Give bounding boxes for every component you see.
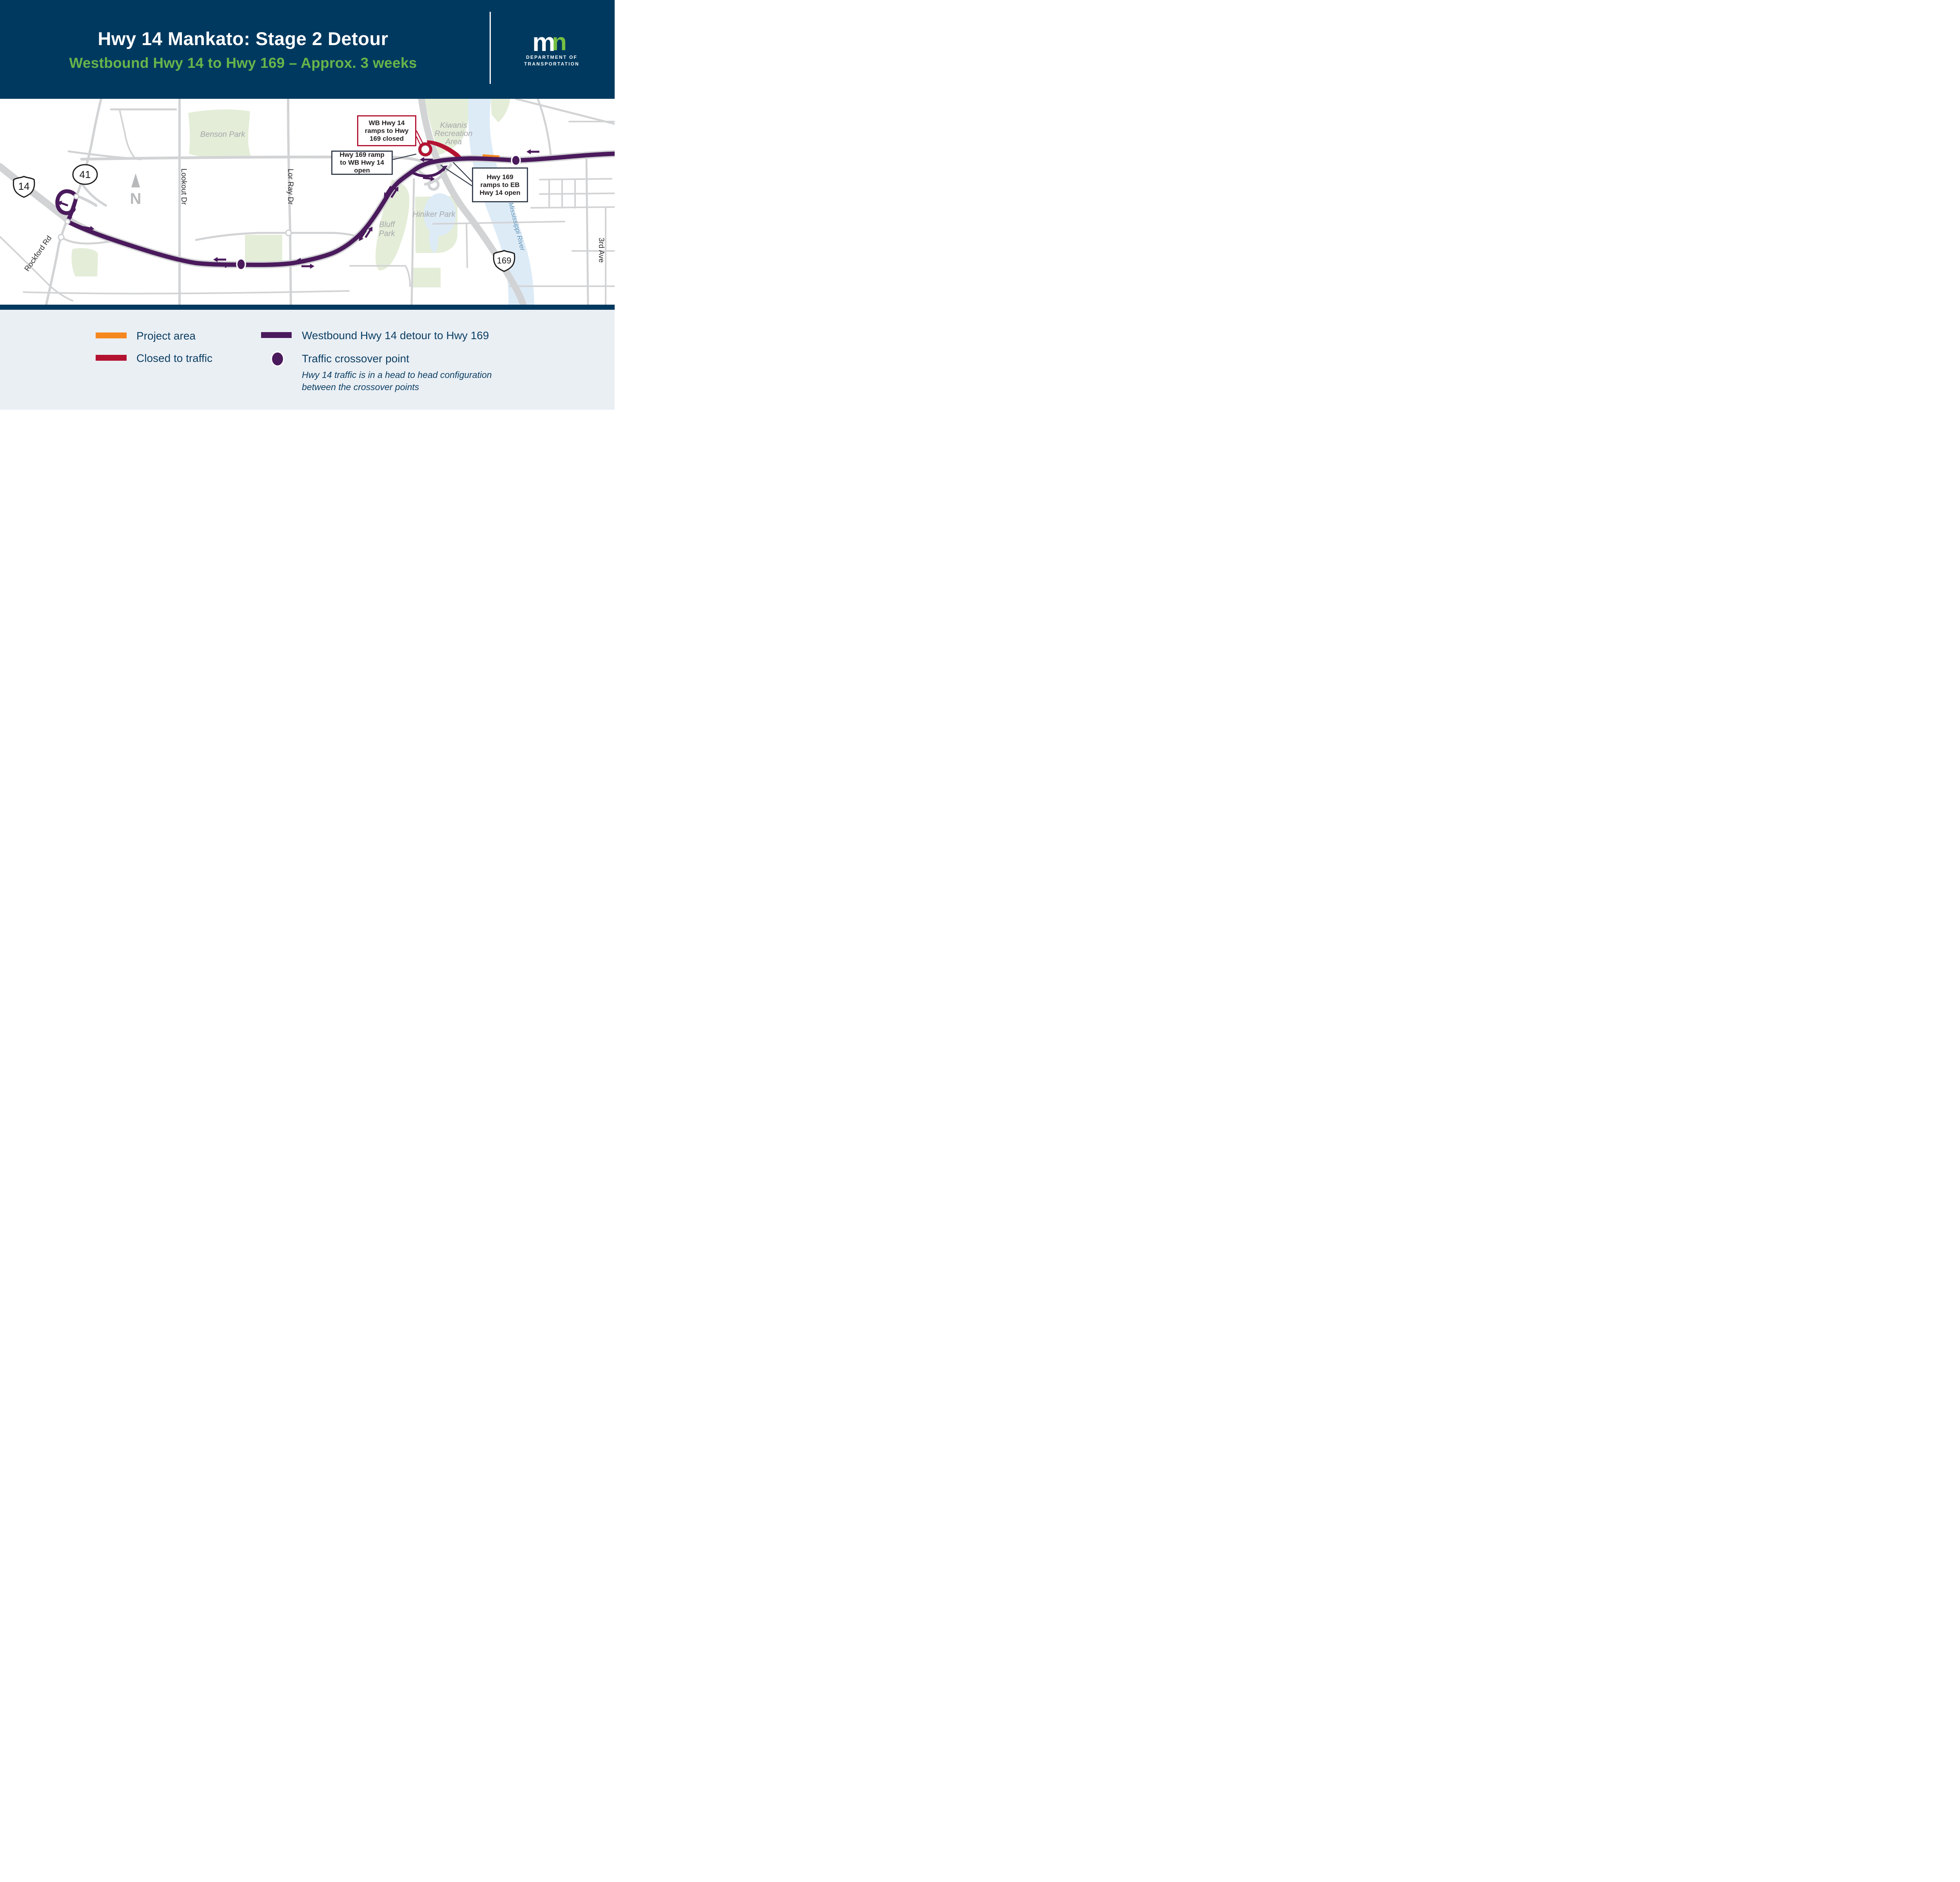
legend-label-project-area: Project area (136, 330, 196, 342)
lor-ray-dr-label: Lor Ray Dr (286, 169, 294, 205)
north-arrow: N (130, 173, 142, 207)
benson-park-label: Benson Park (200, 130, 246, 139)
hiniker-park-label: Hiniker Park (413, 210, 456, 219)
kiwanis-label-line3: Area (445, 138, 462, 146)
callout-eb-ramps-open-text: Hwy 169 ramps to EB Hwy 14 open (477, 173, 523, 197)
lookout-dr-label: Lookout Dr (180, 169, 188, 205)
separator-bar (0, 305, 615, 310)
header-text-block: Hwy 14 Mankato: Stage 2 Detour Westbound… (0, 0, 486, 99)
shield-hwy41: 41 (73, 165, 97, 184)
callout-closed-ramp-text: WB Hwy 14 ramps to Hwy 169 closed (362, 119, 411, 143)
callout-wb-ramp-open-text: Hwy 169 ramp to WB Hwy 14 open (336, 151, 388, 174)
logo-n-glyph: n (552, 29, 567, 56)
green-blob-left (71, 248, 98, 276)
shield-hwy169-number: 169 (497, 256, 512, 265)
mndot-logo: m n DEPARTMENT OF TRANSPORTATION (510, 20, 594, 78)
legend-swatch-project-area (96, 332, 127, 338)
callout-eb-ramps-open: Hwy 169 ramps to EB Hwy 14 open (472, 167, 528, 202)
logo-dept-line2: TRANSPORTATION (510, 61, 594, 67)
callout-closed-ramp: WB Hwy 14 ramps to Hwy 169 closed (357, 115, 416, 146)
kiwanis-sliver (491, 99, 510, 122)
crossover-dot-west (237, 259, 245, 270)
detour-map: N 14 41 169 Benson Park Kiwanis Recreati… (0, 99, 615, 305)
header-divider (490, 12, 491, 84)
page-title: Hwy 14 Mankato: Stage 2 Detour (98, 28, 388, 49)
legend-swatch-detour (261, 332, 292, 338)
crossover-dot-east (512, 155, 520, 165)
legend-swatch-closed (96, 355, 127, 361)
bluff-park-label-line1: Bluff (379, 220, 396, 229)
green-strip-mid (245, 235, 282, 263)
north-arrow-letter: N (130, 190, 142, 207)
green-strip-right (411, 268, 441, 287)
shield-hwy14-number: 14 (18, 180, 30, 192)
page-subtitle: Westbound Hwy 14 to Hwy 169 – Approx. 3 … (69, 55, 417, 71)
legend-crossover-dot (271, 351, 284, 367)
callout-wb-ramp-open: Hwy 169 ramp to WB Hwy 14 open (331, 151, 393, 175)
mndot-logo-mark: m n (510, 20, 594, 78)
shield-hwy41-number: 41 (80, 169, 91, 180)
header-banner: Hwy 14 Mankato: Stage 2 Detour Westbound… (0, 0, 615, 99)
legend-label-detour: Westbound Hwy 14 detour to Hwy 169 (302, 329, 489, 342)
third-ave-label: 3rd Ave (597, 238, 605, 263)
north-arrow-triangle (131, 173, 140, 187)
kiwanis-label-line2: Recreation (435, 129, 473, 138)
rockford-rd-label: Rockford Rd (23, 234, 54, 273)
legend-label-crossover: Traffic crossover point (302, 352, 409, 365)
legend-label-closed: Closed to traffic (136, 352, 212, 365)
legend-note-line1: Hwy 14 traffic is in a head to head conf… (302, 370, 492, 380)
bluff-park-label-line2: Park (379, 229, 395, 238)
logo-dept-line1: DEPARTMENT OF (510, 54, 594, 61)
legend-note-line2: between the crossover points (302, 382, 419, 392)
legend-panel: Project area Closed to traffic Westbound… (0, 310, 615, 410)
kiwanis-label-line1: Kiwanis (440, 121, 467, 130)
